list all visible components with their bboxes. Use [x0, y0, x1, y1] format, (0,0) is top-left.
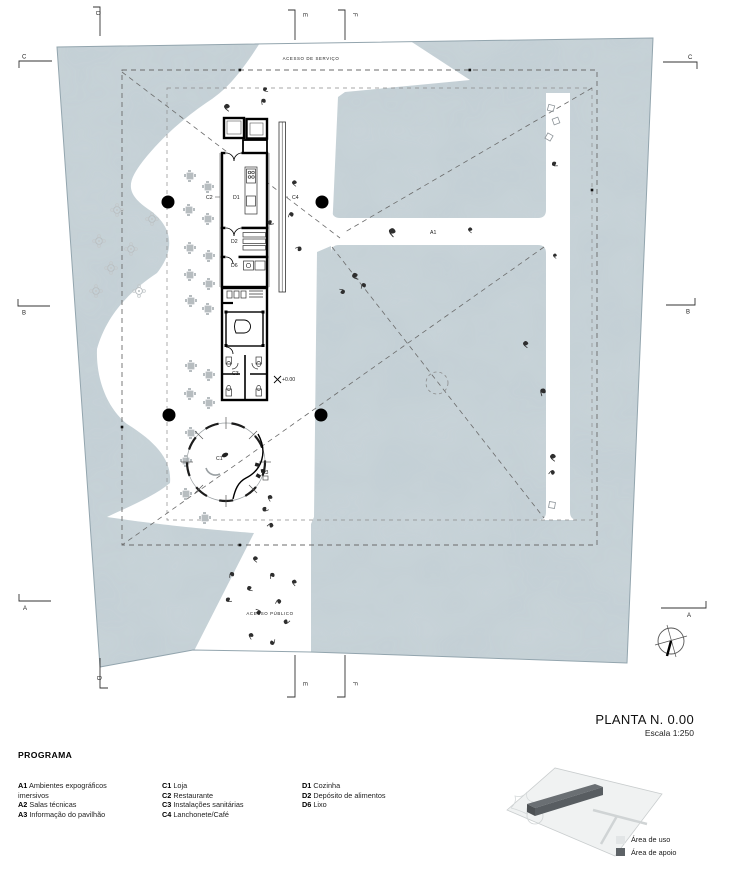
- room-label-c3: C3: [232, 371, 239, 377]
- section-marker-c-right: C: [663, 55, 697, 69]
- programa-legend: PROGRAMA A1 Ambientes expográficos imers…: [18, 750, 72, 760]
- section-marker-f-bottom: F: [337, 655, 357, 697]
- programa-column-c: C1 Loja C2 Restaurante C3 Instalações sa…: [162, 781, 302, 820]
- north-compass-icon: [655, 625, 687, 657]
- programa-item: C3 Instalações sanitárias: [162, 800, 302, 810]
- svg-text:C: C: [22, 55, 27, 61]
- programa-item: D6 Lixo: [302, 800, 452, 810]
- section-marker-a-right: A: [661, 601, 706, 619]
- area-legend: Área de uso Área de apoio: [616, 835, 676, 860]
- room-label-d6: D6: [231, 263, 238, 269]
- section-marker-e-bottom: E: [287, 655, 307, 697]
- programa-heading: PROGRAMA: [18, 750, 72, 760]
- svg-text:D: D: [95, 676, 101, 681]
- svg-text:F: F: [351, 13, 357, 17]
- legend-row-uso: Área de uso: [616, 835, 676, 844]
- section-marker-c-left: C: [19, 55, 52, 69]
- area-uso-swatch: [616, 836, 625, 844]
- legend-row-apoio: Área de apoio: [616, 848, 676, 857]
- section-marker-b-left: B: [18, 299, 50, 317]
- room-label-a3: A3: [262, 470, 268, 476]
- svg-text:E: E: [301, 682, 307, 686]
- programa-item: D2 Depósito de alimentos: [302, 791, 452, 801]
- programa-item: C2 Restaurante: [162, 791, 302, 801]
- svg-text:B: B: [22, 311, 26, 317]
- access-service-label: ACESSO DE SERVIÇO: [283, 56, 340, 61]
- section-marker-b-right: B: [666, 298, 695, 316]
- room-label-d1: D1: [233, 195, 240, 201]
- section-marker-d-top: D: [93, 7, 100, 36]
- svg-text:A: A: [687, 613, 691, 619]
- drawing-sheet: ACESSO DE SERVIÇO ACESSO PÚBLICO C2 D1 C…: [0, 0, 730, 877]
- programa-item: C1 Loja: [162, 781, 302, 791]
- programa-item: A2 Salas técnicas: [18, 800, 136, 810]
- corridor-a1: [331, 218, 546, 245]
- sheet-title: PLANTA N. 0.00: [595, 712, 694, 727]
- area-apoio-label: Área de apoio: [631, 848, 676, 857]
- programa-item: A3 Informação do pavilhão: [18, 810, 136, 820]
- access-public-label: ACESSO PÚBLICO: [246, 611, 293, 616]
- site-plan-drawing: ACESSO DE SERVIÇO ACESSO PÚBLICO C2 D1 C…: [0, 0, 730, 710]
- room-label-c4: C4: [292, 195, 299, 201]
- sheet-scale: Escala 1:250: [595, 728, 694, 738]
- area-uso-label: Área de uso: [631, 835, 670, 844]
- room-label-a1: A1: [430, 230, 436, 236]
- area-apoio-swatch: [616, 848, 625, 856]
- svg-text:F: F: [351, 682, 357, 686]
- programa-item: A1 Ambientes expográficos imersivos: [18, 781, 136, 800]
- svg-text:A: A: [23, 606, 27, 612]
- programa-column-d: D1 Cozinha D2 Depósito de alimentos D6 L…: [302, 781, 452, 820]
- svg-text:B: B: [686, 310, 690, 316]
- room-label-c2: C2: [206, 195, 213, 201]
- svg-text:E: E: [301, 13, 307, 17]
- room-label-d2: D2: [231, 239, 238, 245]
- corridor-east: [546, 93, 570, 520]
- programa-column-a: A1 Ambientes expográficos imersivos A2 S…: [18, 781, 162, 820]
- room-label-c1: C1: [216, 456, 223, 462]
- cafe-counter: [279, 122, 286, 292]
- svg-text:D: D: [94, 11, 100, 16]
- level-label: +0.00: [282, 377, 295, 383]
- svg-text:C: C: [688, 55, 693, 61]
- programa-item: C4 Lanchonete/Café: [162, 810, 302, 820]
- programa-item: D1 Cozinha: [302, 781, 452, 791]
- section-marker-a-left: A: [19, 594, 51, 612]
- title-block: PLANTA N. 0.00 Escala 1:250: [595, 712, 694, 738]
